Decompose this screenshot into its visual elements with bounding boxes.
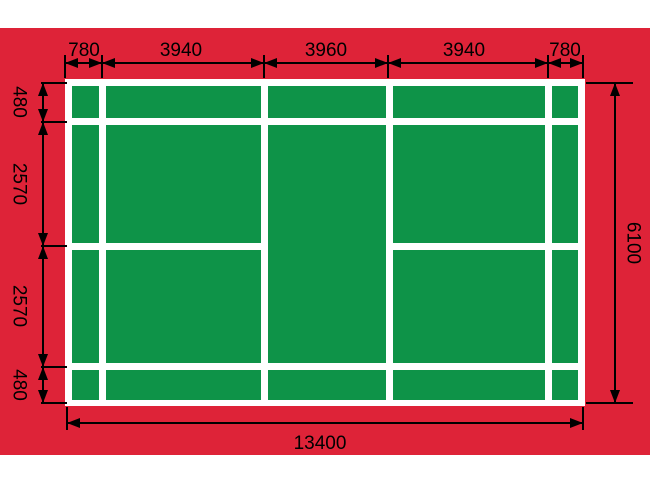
diagram-page: 780 3940 3960 3940 780 480 2570 2570 480 <box>0 0 650 488</box>
top-dim-label-3940-left: 3940 <box>160 40 202 61</box>
left-dim-label-2570-lower: 2570 <box>8 285 29 327</box>
badminton-court-diagram: 780 3940 3960 3940 780 480 2570 2570 480 <box>0 0 650 488</box>
court-cell <box>393 125 545 243</box>
court-cells <box>72 86 578 400</box>
court-cell <box>268 125 386 363</box>
top-dim-label-3960: 3960 <box>305 40 347 61</box>
top-dim-label-3940-right: 3940 <box>443 40 485 61</box>
court-cell <box>393 86 545 118</box>
court-cell <box>268 370 386 400</box>
court-cell <box>552 86 578 118</box>
bottom-dim-label-13400: 13400 <box>294 433 347 454</box>
court-cell <box>106 125 261 243</box>
left-dim-label-480-bottom: 480 <box>8 369 29 401</box>
top-dim-label-780-left: 780 <box>68 40 100 61</box>
left-dim-label-2570-upper: 2570 <box>8 163 29 205</box>
court-cell <box>106 370 261 400</box>
court-cell <box>552 125 578 243</box>
court-cell <box>393 250 545 363</box>
court-cell <box>552 250 578 363</box>
court-cell <box>72 125 99 243</box>
right-dim-label-6100: 6100 <box>622 222 643 264</box>
court-cell <box>268 86 386 118</box>
left-dim-label-480-top: 480 <box>8 86 29 118</box>
court-cell <box>106 86 261 118</box>
court-cell <box>106 250 261 363</box>
court-cell <box>72 250 99 363</box>
court-cell <box>72 86 99 118</box>
court-cell <box>393 370 545 400</box>
court-cell <box>552 370 578 400</box>
top-dim-label-780-right: 780 <box>549 40 581 61</box>
court-cell <box>72 370 99 400</box>
